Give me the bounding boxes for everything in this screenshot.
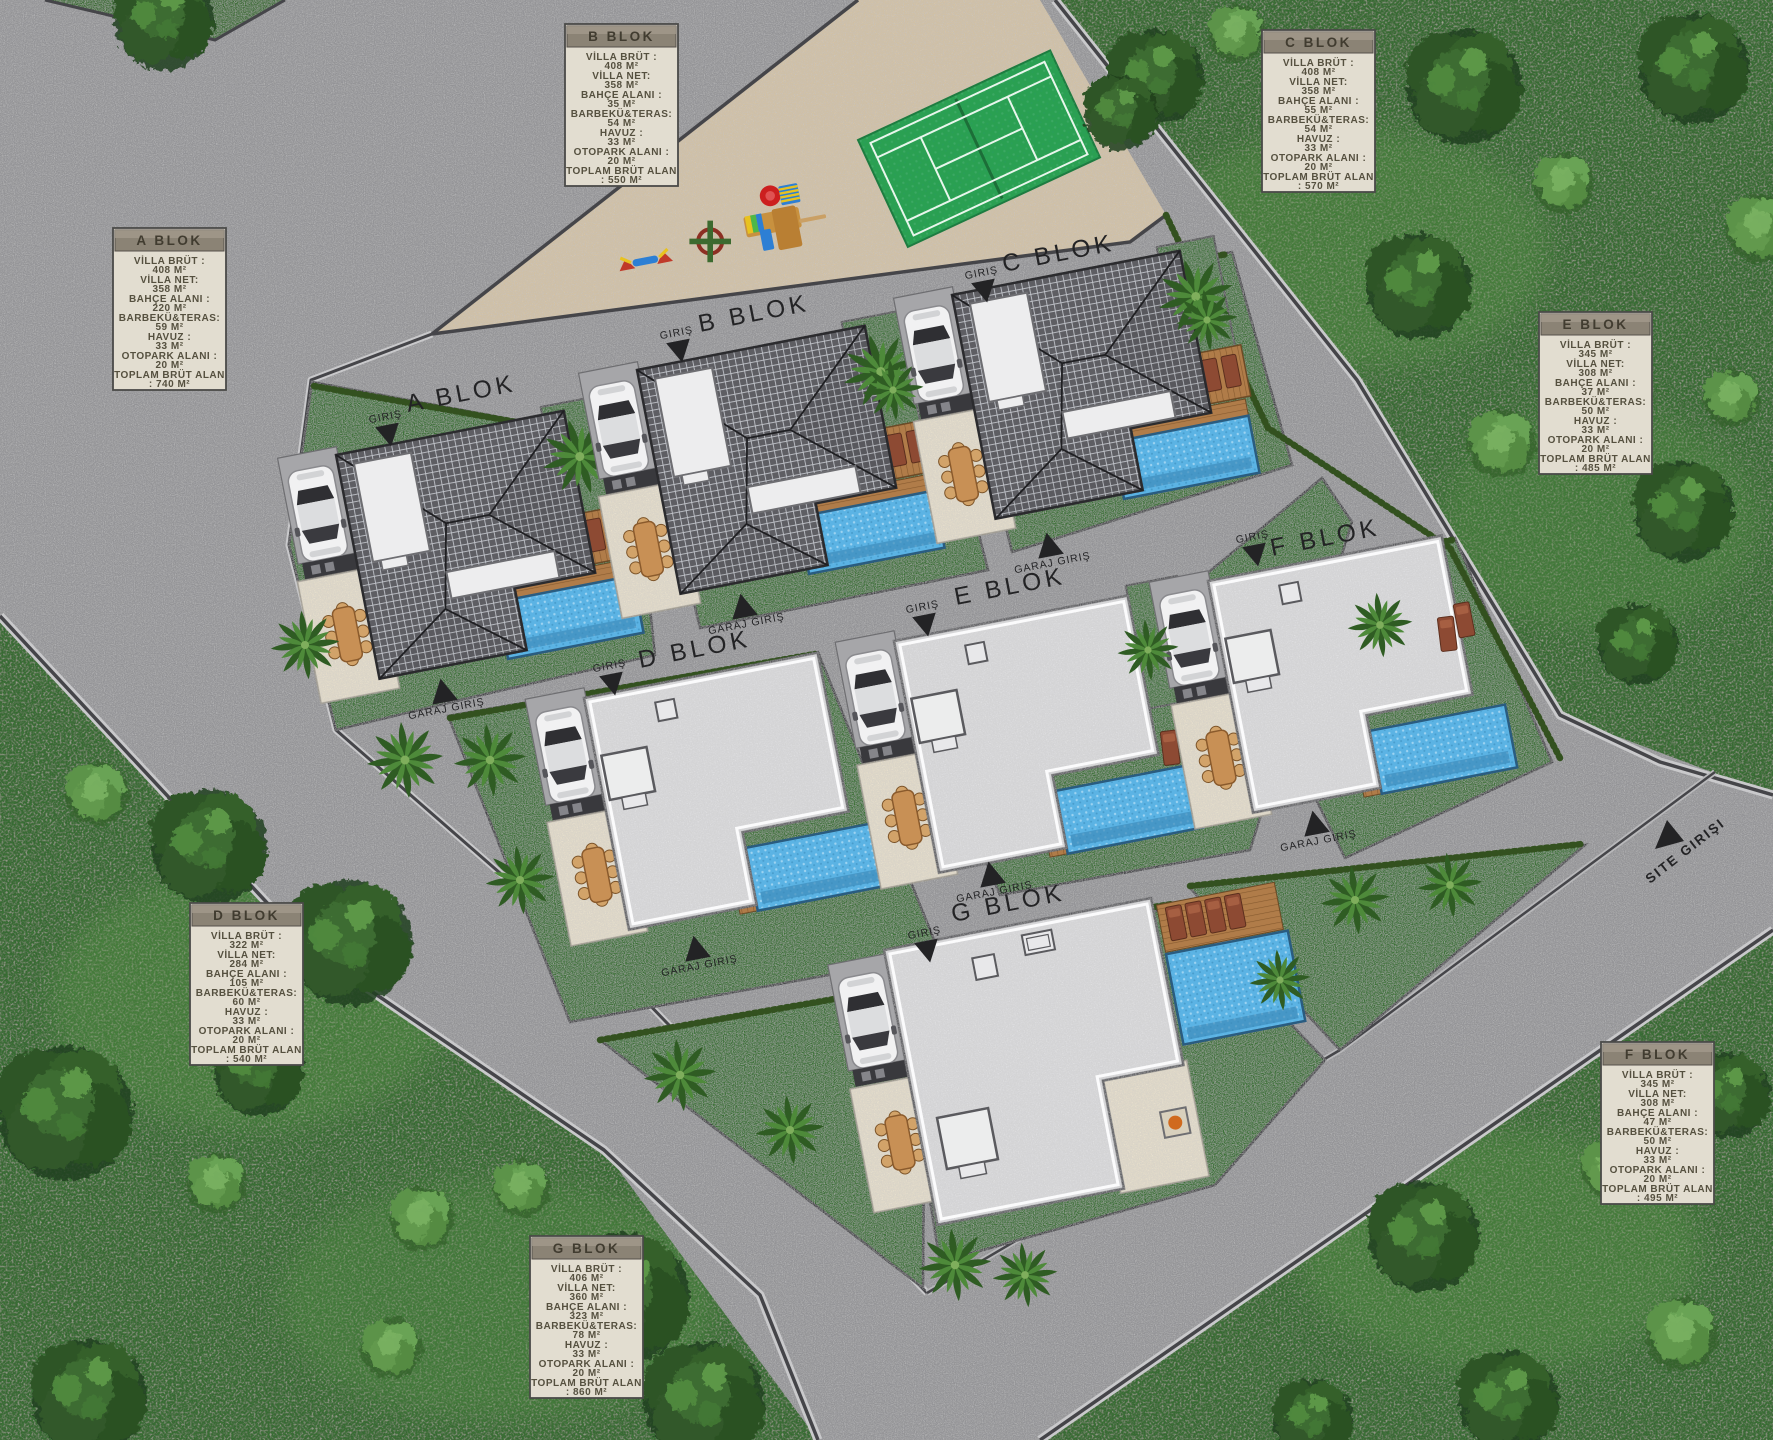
svg-text:E BLOK: E BLOK bbox=[1562, 317, 1628, 332]
svg-text:: 570 M²: : 570 M² bbox=[1298, 181, 1339, 192]
svg-text:: 540 M²: : 540 M² bbox=[226, 1054, 267, 1065]
svg-text:: 740 M²: : 740 M² bbox=[149, 379, 190, 390]
svg-text:B BLOK: B BLOK bbox=[588, 29, 655, 44]
svg-text:G BLOK: G BLOK bbox=[553, 1241, 621, 1256]
svg-text:C BLOK: C BLOK bbox=[1285, 35, 1352, 50]
svg-text:: 860 M²: : 860 M² bbox=[566, 1387, 607, 1398]
svg-text:A BLOK: A BLOK bbox=[136, 233, 202, 248]
svg-text:: 485 M²: : 485 M² bbox=[1575, 463, 1616, 474]
svg-text:F BLOK: F BLOK bbox=[1625, 1047, 1690, 1062]
svg-text:D BLOK: D BLOK bbox=[213, 908, 280, 923]
svg-text:: 495 M²: : 495 M² bbox=[1637, 1193, 1678, 1204]
svg-text:: 550 M²: : 550 M² bbox=[601, 175, 642, 186]
